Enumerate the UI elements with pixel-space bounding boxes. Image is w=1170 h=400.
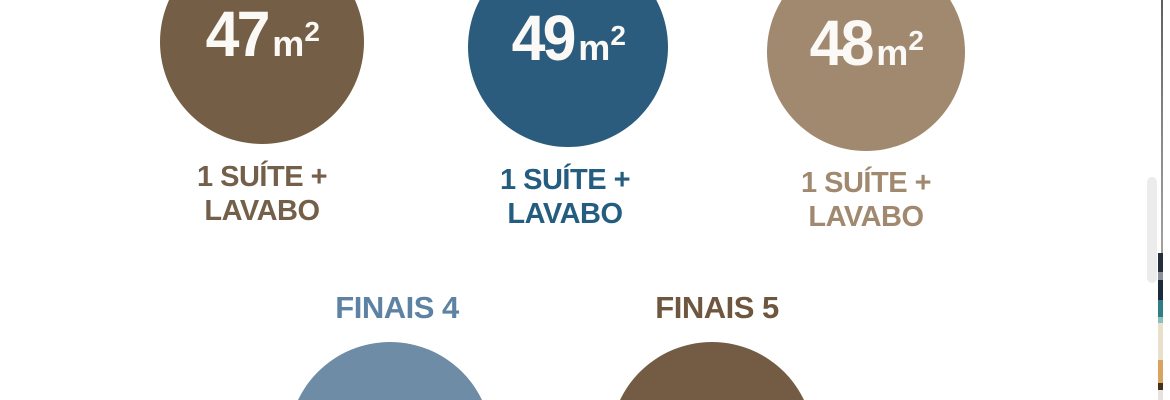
unit-type-label-48: 1 SUÍTE + LAVABO (746, 166, 986, 234)
unit-type-label-49: 1 SUÍTE + LAVABO (445, 163, 685, 231)
unit-type-line2: LAVABO (746, 200, 986, 234)
area-unit-superscript: 2 (304, 18, 320, 46)
next-slide-edge (1158, 253, 1163, 400)
unit-area-circle-47: 47 m 2 (160, 0, 364, 144)
unit-area-circle-48: 48 m 2 (767, 0, 965, 151)
area-unit: m (578, 30, 609, 66)
unit-type-line2: LAVABO (142, 194, 382, 228)
unit-area-text: 49 m 2 (510, 6, 626, 147)
unit-type-line1: 1 SUÍTE + (142, 160, 382, 194)
unit-type-line1: 1 SUÍTE + (445, 163, 685, 197)
finais-5-label: FINAIS 5 (607, 291, 827, 325)
finais-4-circle (288, 342, 492, 400)
finais-4-label: FINAIS 4 (287, 291, 507, 325)
area-unit-superscript: 2 (610, 22, 626, 50)
vertical-scrollbar-thumb[interactable] (1147, 177, 1157, 283)
floorplan-infographic-slide: 47 m 2 1 SUÍTE + LAVABO 49 m 2 1 SUÍTE +… (0, 0, 1170, 400)
unit-area-text: 48 m 2 (808, 11, 924, 151)
finais-5-circle (610, 342, 814, 400)
unit-type-label-47: 1 SUÍTE + LAVABO (142, 160, 382, 228)
area-unit: m (876, 35, 907, 71)
area-unit: m (272, 26, 303, 62)
area-value: 47 (206, 2, 268, 66)
area-unit-superscript: 2 (908, 27, 924, 55)
area-value: 48 (810, 11, 872, 75)
unit-area-circle-49: 49 m 2 (468, 0, 668, 147)
unit-type-line1: 1 SUÍTE + (746, 166, 986, 200)
unit-area-text: 47 m 2 (204, 2, 320, 144)
area-value: 49 (512, 6, 574, 70)
unit-type-line2: LAVABO (445, 197, 685, 231)
